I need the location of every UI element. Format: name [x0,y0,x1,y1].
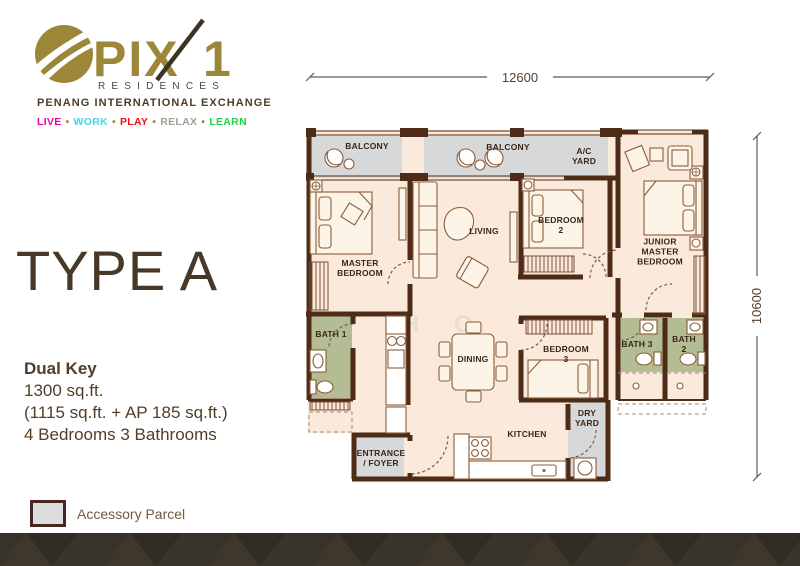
floor-plan: H O [306,128,712,490]
room-label-dining: DINING [458,355,489,365]
room-label-junior-master: JUNIOR MASTER BEDROOM [637,237,683,266]
room-label-balcony-left: BALCONY [345,142,388,152]
room-label-dry-yard: DRY YARD [575,409,599,429]
room-label-kitchen: KITCHEN [507,430,546,440]
dimension-width-label: 12600 [502,70,538,85]
room-label-living: LIVING [469,227,499,237]
room-label-bedroom-2: BEDROOM 2 [538,216,584,236]
legend-accessory-parcel-swatch [30,500,66,527]
room-label-master-bedroom: MASTER BEDROOM [337,259,383,279]
dimension-height-label: 10600 [749,288,764,324]
footer-band [0,533,800,566]
room-label-entrance: ENTRANCE / FOYER [357,449,406,469]
legend-accessory-parcel-label: Accessory Parcel [77,506,185,522]
room-label-bath-1: BATH 1 [315,330,346,340]
brochure-page: PIX 1 RESIDENCES PENANG INTERNATIONAL EX… [0,0,800,566]
room-label-balcony-mid: BALCONY [486,143,529,153]
room-label-bath-3: BATH 3 [621,340,652,350]
room-label-bath-2: BATH 2 [670,335,698,355]
room-label-bedroom-3: BEDROOM 3 [543,345,589,365]
room-label-ac-yard: A/C YARD [572,147,596,167]
